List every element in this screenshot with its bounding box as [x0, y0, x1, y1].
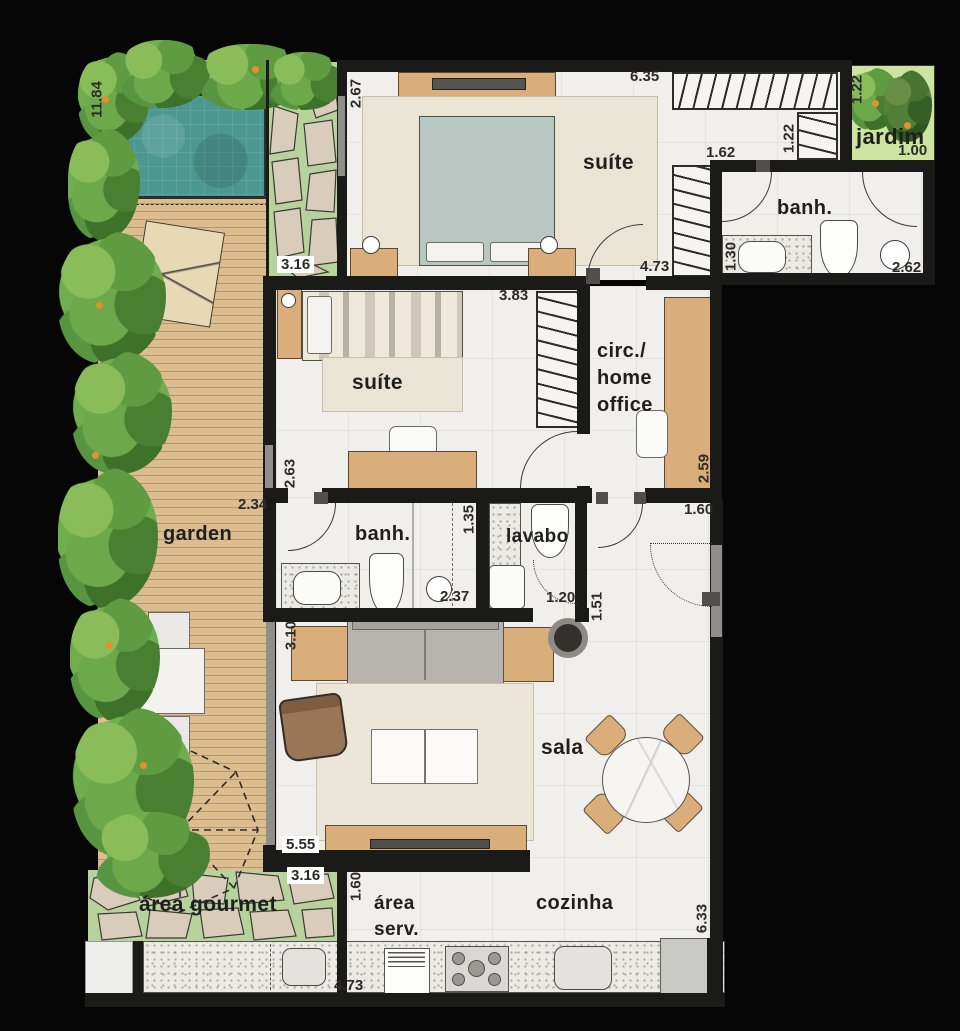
wall-top — [337, 60, 852, 72]
label-banh-mid: banh. — [355, 523, 410, 546]
label-area-gourmet: área gourmet — [139, 893, 277, 917]
dimension-banh-top-width: 2.62 — [892, 259, 921, 276]
wall-bottom — [85, 993, 725, 1007]
wall-bench-gap — [133, 941, 143, 995]
dining-table-round — [602, 737, 690, 823]
gourmet-bench — [85, 941, 133, 994]
dimension-path-top: 3.16 — [277, 256, 314, 273]
dimension-lavabo-width: 1.20 — [546, 589, 575, 606]
label-banh-top: banh. — [777, 197, 832, 220]
closet-rack-side — [672, 165, 712, 277]
door-entry-track-dotted — [650, 543, 712, 544]
label-cozinha: cozinha — [536, 892, 613, 915]
label-suite2: suíte — [352, 371, 403, 395]
suite2-desk — [348, 451, 477, 492]
lamp-left — [362, 236, 380, 254]
dimension-servico-left: 1.60 — [348, 859, 365, 915]
suite2-lamp — [281, 293, 296, 308]
flower-6 — [140, 762, 147, 769]
closet-rack-corner — [797, 112, 838, 160]
wall-suite2-circ — [577, 286, 590, 434]
sofa-seam — [424, 630, 426, 680]
dimension-shower-width: 2.37 — [440, 588, 469, 605]
wall-suite-divider-b — [646, 276, 712, 290]
dimension-circ-height: 2.59 — [696, 441, 713, 497]
gourmet-sink — [282, 948, 326, 986]
dimension-jardim-height: 1.22 — [849, 62, 866, 118]
burner-3 — [468, 960, 485, 977]
label-sala: sala — [541, 736, 583, 760]
wall-banh-top-right — [923, 172, 935, 285]
burner-1 — [452, 952, 465, 965]
label-suite-master: suíte — [583, 151, 634, 175]
wall-bath-row-bottom-a — [276, 608, 533, 622]
flower-5 — [106, 642, 113, 649]
dimension-suite-master-bottom: 4.73 — [640, 258, 669, 275]
sala-side-table-right — [501, 627, 554, 682]
wall-mid-row-b — [322, 488, 592, 503]
burner-2 — [488, 952, 501, 965]
wall-bottom-right-corner — [707, 938, 723, 995]
banh-top-sink — [738, 241, 786, 273]
flower-4 — [92, 452, 99, 459]
laundry-tank-ribs — [388, 952, 425, 968]
dimension-corridor: 1.51 — [589, 579, 606, 635]
dimension-deck-width: 2.34 — [238, 496, 267, 513]
sliding-door-sala-left — [266, 622, 275, 852]
closet-rack-top — [672, 72, 838, 110]
label-area-serv-line2: serv. — [374, 917, 419, 943]
suite2-wardrobe — [536, 291, 579, 428]
label-garden: garden — [163, 523, 232, 546]
dimension-sala-left: 3.10 — [283, 608, 300, 664]
label-circ-line2: home — [597, 365, 653, 392]
label-circ-line3: office — [597, 392, 653, 419]
wall-suite-divider-a — [263, 276, 590, 290]
label-circ-line1: circ./ — [597, 338, 653, 365]
label-area-serv-line1: área — [374, 891, 419, 917]
bed-pillow-left — [426, 242, 484, 262]
dimension-path-bottom: 3.16 — [287, 867, 324, 884]
kitchen-sink — [554, 946, 612, 990]
coffee-table-seam — [424, 730, 426, 783]
label-lavabo: lavabo — [506, 526, 569, 548]
floor-pot-plant — [548, 618, 588, 658]
tv-suite — [432, 78, 526, 90]
dimension-garden-height: 11.84 — [89, 72, 106, 128]
flower-2 — [252, 66, 259, 73]
laundry-tank — [384, 948, 430, 994]
dimension-cozinha-height: 6.33 — [694, 891, 711, 947]
cooktop — [445, 946, 509, 992]
dimension-closet-opening: 1.62 — [706, 144, 735, 161]
armchair — [278, 692, 349, 763]
wall-bath-row-bottom-b — [575, 608, 589, 622]
counter-divider-dashed — [270, 944, 271, 990]
flower-7 — [872, 100, 879, 107]
dimension-banh-mid-right: 1.35 — [461, 492, 478, 548]
lamp-right — [540, 236, 558, 254]
wall-sala-left-corner — [263, 845, 276, 872]
dimension-jardim-width: 1.00 — [898, 142, 927, 159]
door-jamb-closet — [756, 160, 770, 172]
dimension-sala-width: 5.55 — [282, 836, 319, 853]
banh-mid-sink — [293, 571, 341, 605]
floor-plan-canvas: jardim suíte banh. suíte circ./ home off… — [0, 0, 960, 1031]
dimension-suite-master-left: 2.67 — [348, 66, 365, 122]
lavabo-sink — [489, 565, 525, 609]
wall-banh-lavabo — [476, 500, 489, 620]
burner-5 — [488, 973, 501, 986]
dimension-entry-width: 1.60 — [684, 501, 713, 518]
dimension-banh-top-counter: 1.30 — [723, 229, 740, 285]
dimension-suite2-width: 3.83 — [499, 287, 528, 304]
window-suite-left — [338, 96, 345, 176]
sala-side-table-left — [291, 626, 348, 681]
burner-4 — [452, 973, 465, 986]
dimension-closet-depth: 1.22 — [781, 111, 798, 167]
shaft-right-gray — [711, 545, 722, 637]
banh-mid-partition — [412, 503, 414, 610]
wall-jardim-bottom — [712, 160, 935, 172]
kitchen-counter — [143, 941, 725, 993]
flower-3 — [96, 302, 103, 309]
label-area-servico: área serv. — [374, 891, 419, 943]
tv-sala — [370, 839, 490, 849]
suite2-pillow — [307, 296, 332, 354]
dimension-suite-master-width: 6.35 — [630, 68, 659, 85]
label-circ-home-office: circ./ home office — [597, 338, 653, 419]
dimension-suite2-left: 2.63 — [282, 446, 299, 502]
dimension-counter-bottom: 4.73 — [334, 977, 363, 994]
wall-deck-edge — [266, 60, 269, 278]
